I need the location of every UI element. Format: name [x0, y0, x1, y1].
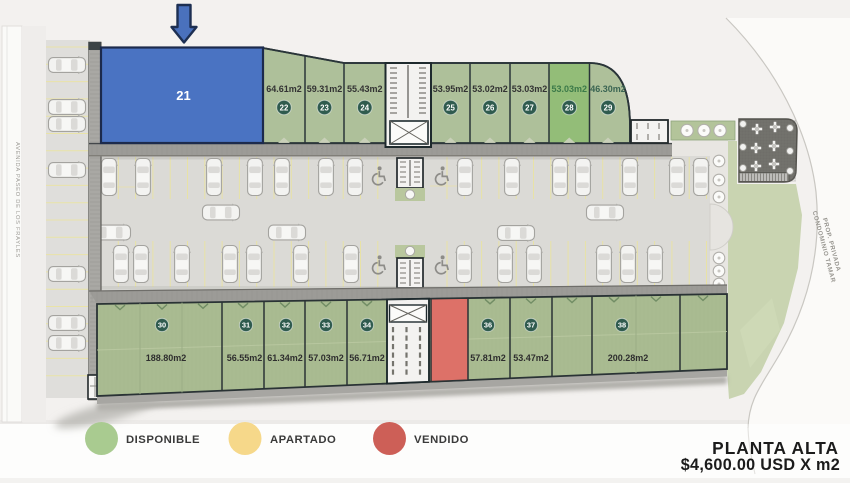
svg-text:57.81m2: 57.81m2 [470, 353, 506, 363]
svg-text:56.71m2: 56.71m2 [349, 353, 385, 363]
svg-text:$4,600.00 USD X m2: $4,600.00 USD X m2 [681, 456, 840, 474]
svg-text:APARTADO: APARTADO [270, 434, 336, 446]
svg-text:22: 22 [280, 103, 289, 112]
svg-text:DISPONIBLE: DISPONIBLE [126, 434, 200, 446]
svg-text:57.03m2: 57.03m2 [308, 353, 344, 363]
svg-text:31: 31 [242, 321, 250, 330]
svg-text:25: 25 [446, 103, 455, 112]
svg-text:PLANTA ALTA: PLANTA ALTA [712, 438, 839, 458]
svg-text:61.34m2: 61.34m2 [267, 353, 303, 363]
svg-text:53.02m2: 53.02m2 [472, 84, 508, 94]
svg-text:28: 28 [565, 103, 574, 112]
svg-text:29: 29 [604, 103, 613, 112]
svg-text:30: 30 [158, 321, 166, 330]
svg-text:53.03m2: 53.03m2 [512, 84, 548, 94]
svg-text:38: 38 [618, 321, 626, 330]
svg-text:188.80m2: 188.80m2 [146, 353, 187, 363]
svg-text:AVENIDA PASEO DE LOS FRAYLES: AVENIDA PASEO DE LOS FRAYLES [14, 142, 20, 258]
svg-text:55.43m2: 55.43m2 [347, 84, 383, 94]
svg-text:53.03m2: 53.03m2 [551, 84, 587, 94]
svg-text:56.55m2: 56.55m2 [227, 353, 263, 363]
svg-text:VENDIDO: VENDIDO [414, 434, 469, 446]
svg-text:26: 26 [486, 103, 495, 112]
svg-text:37: 37 [527, 321, 535, 330]
svg-text:23: 23 [320, 103, 329, 112]
svg-text:36: 36 [484, 321, 492, 330]
svg-text:46.30m2: 46.30m2 [590, 84, 626, 94]
svg-text:64.61m2: 64.61m2 [266, 84, 302, 94]
svg-text:53.95m2: 53.95m2 [433, 84, 469, 94]
svg-text:34: 34 [363, 321, 372, 330]
svg-text:24: 24 [360, 103, 369, 112]
svg-text:21: 21 [176, 88, 190, 103]
svg-text:59.31m2: 59.31m2 [307, 84, 343, 94]
svg-text:32: 32 [282, 321, 290, 330]
svg-text:53.47m2: 53.47m2 [513, 353, 549, 363]
svg-text:33: 33 [322, 321, 330, 330]
svg-text:200.28m2: 200.28m2 [608, 353, 649, 363]
svg-text:27: 27 [525, 103, 534, 112]
